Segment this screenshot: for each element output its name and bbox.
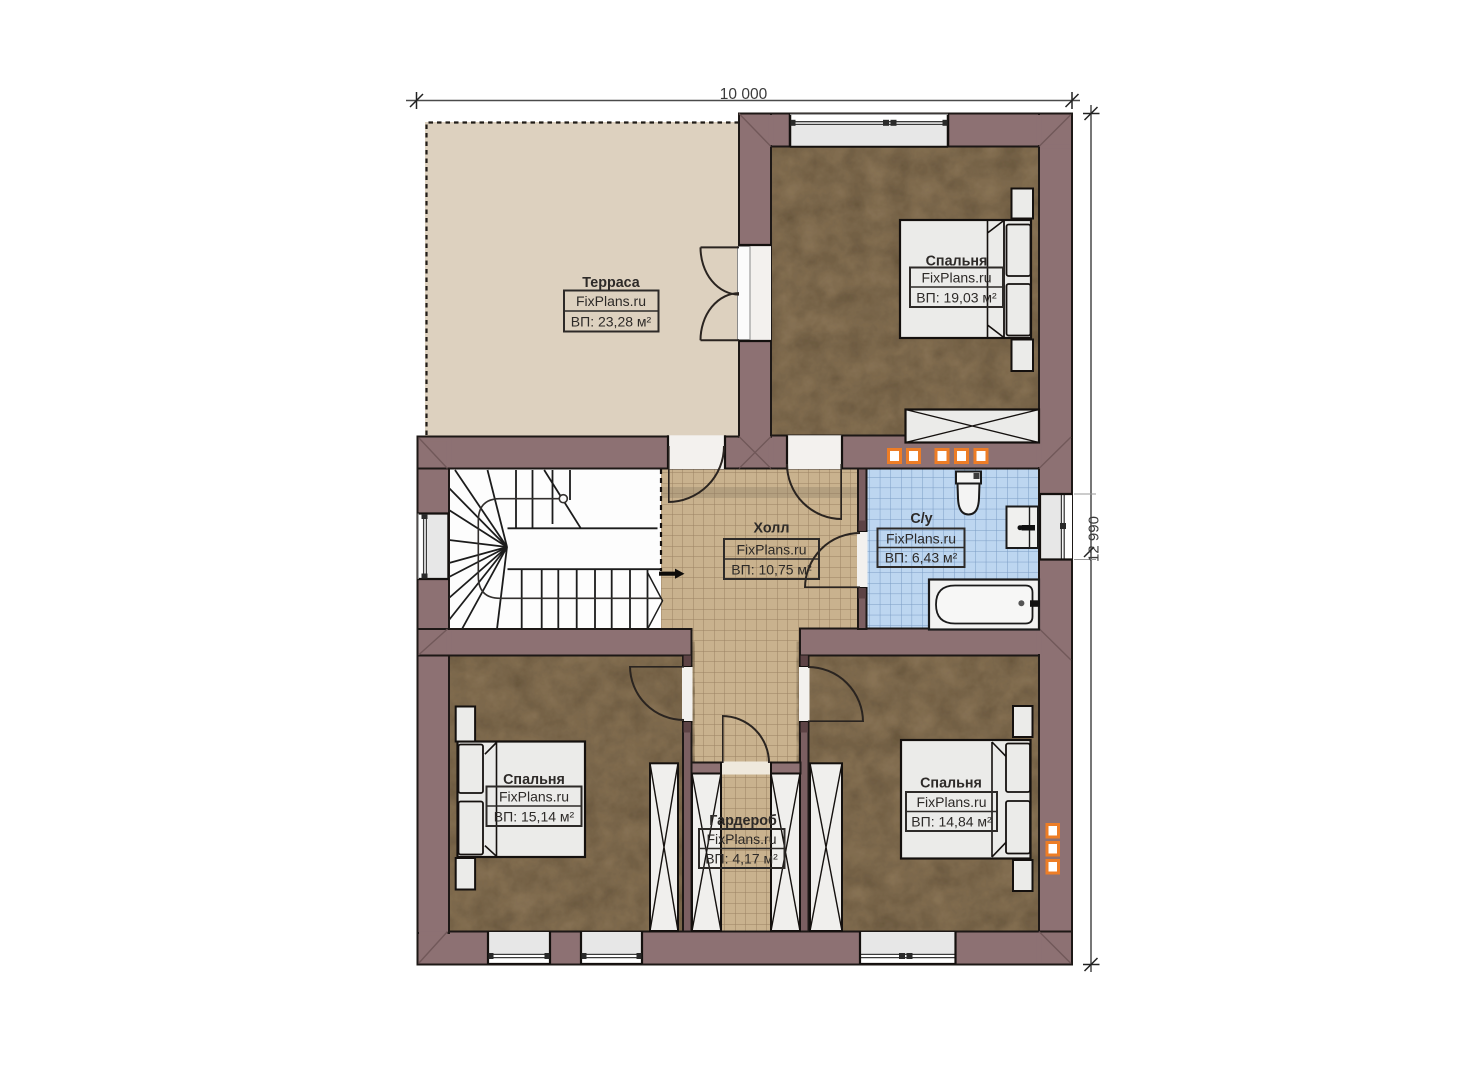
svg-text:Терраса: Терраса [582,275,641,291]
svg-text:ВП: 19,03 м²: ВП: 19,03 м² [916,290,997,306]
svg-text:FixPlans.ru: FixPlans.ru [499,789,569,805]
svg-text:Гардероб: Гардероб [709,813,777,829]
svg-text:Спальня: Спальня [920,776,982,792]
svg-text:ВП: 23,28 м²: ВП: 23,28 м² [571,314,652,330]
svg-text:12 990: 12 990 [1086,516,1103,562]
svg-text:FixPlans.ru: FixPlans.ru [921,270,991,286]
svg-text:FixPlans.ru: FixPlans.ru [706,831,776,847]
svg-text:FixPlans.ru: FixPlans.ru [886,531,956,547]
svg-text:ВП: 6,43 м²: ВП: 6,43 м² [885,550,958,566]
svg-text:С/у: С/у [910,511,932,527]
svg-text:FixPlans.ru: FixPlans.ru [916,794,986,810]
svg-text:ВП: 10,75 м²: ВП: 10,75 м² [731,562,812,578]
svg-text:FixPlans.ru: FixPlans.ru [736,542,806,558]
svg-text:FixPlans.ru: FixPlans.ru [576,293,646,309]
svg-text:ВП: 15,14 м²: ВП: 15,14 м² [494,809,575,825]
svg-text:ВП: 4,17 м²: ВП: 4,17 м² [705,851,778,867]
svg-text:Холл: Холл [754,521,790,537]
svg-text:ВП: 14,84 м²: ВП: 14,84 м² [911,814,992,830]
svg-text:10 000: 10 000 [720,86,768,103]
